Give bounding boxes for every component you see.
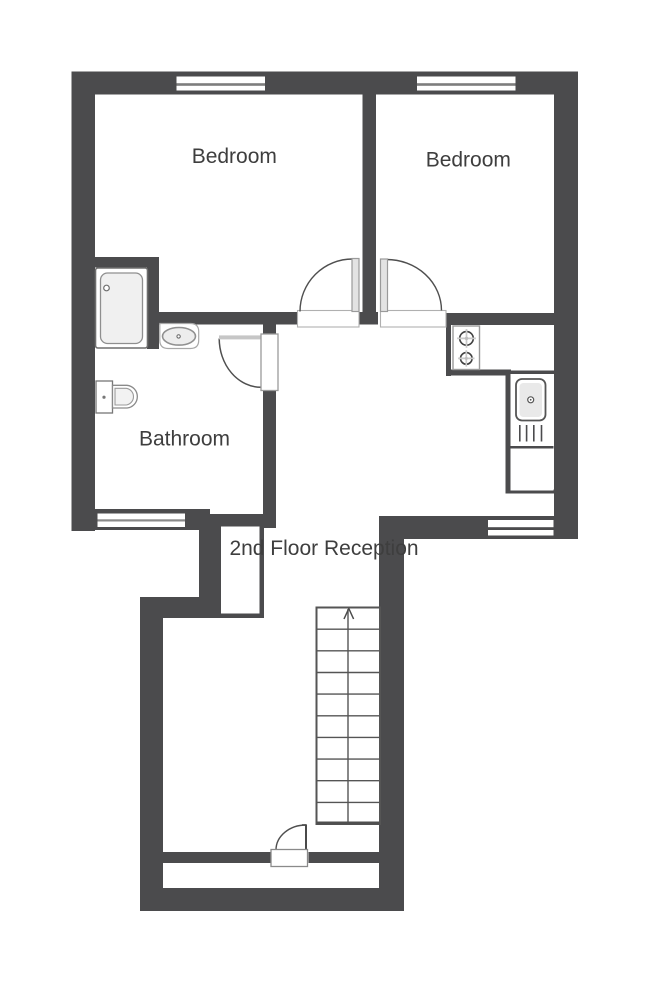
svg-text:Bedroom: Bedroom (426, 148, 511, 171)
svg-text:Bedroom: Bedroom (192, 145, 277, 168)
svg-text:Bathroom: Bathroom (139, 427, 230, 450)
svg-text:2nd Floor Reception: 2nd Floor Reception (229, 537, 418, 560)
